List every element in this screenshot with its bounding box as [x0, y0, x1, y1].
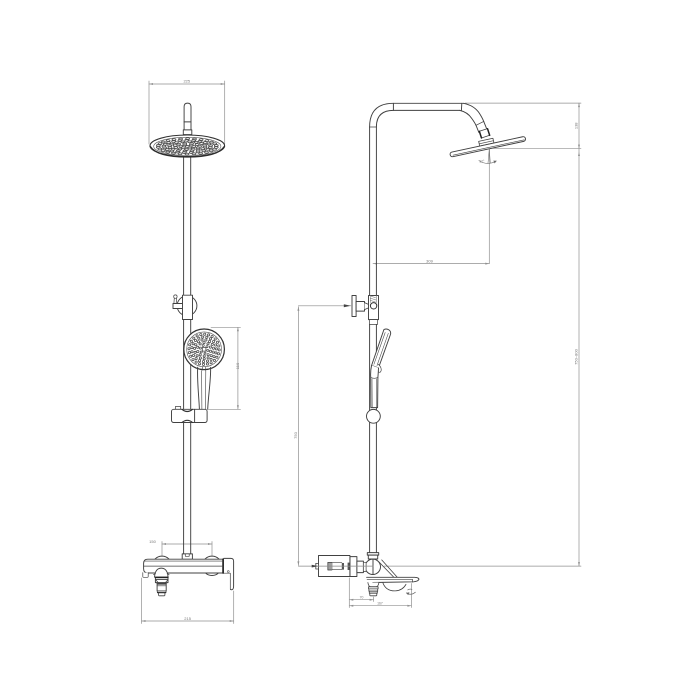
svg-text:225: 225 — [183, 79, 190, 84]
svg-text:150: 150 — [149, 539, 156, 544]
svg-text:309: 309 — [426, 258, 433, 263]
svg-text:70: 70 — [360, 596, 364, 600]
svg-text:215: 215 — [184, 616, 191, 621]
svg-text:110: 110 — [235, 362, 240, 369]
svg-text:750: 750 — [293, 431, 298, 438]
svg-text:138: 138 — [574, 122, 579, 129]
svg-text:167: 167 — [377, 602, 383, 606]
svg-text:750~800: 750~800 — [574, 348, 579, 364]
